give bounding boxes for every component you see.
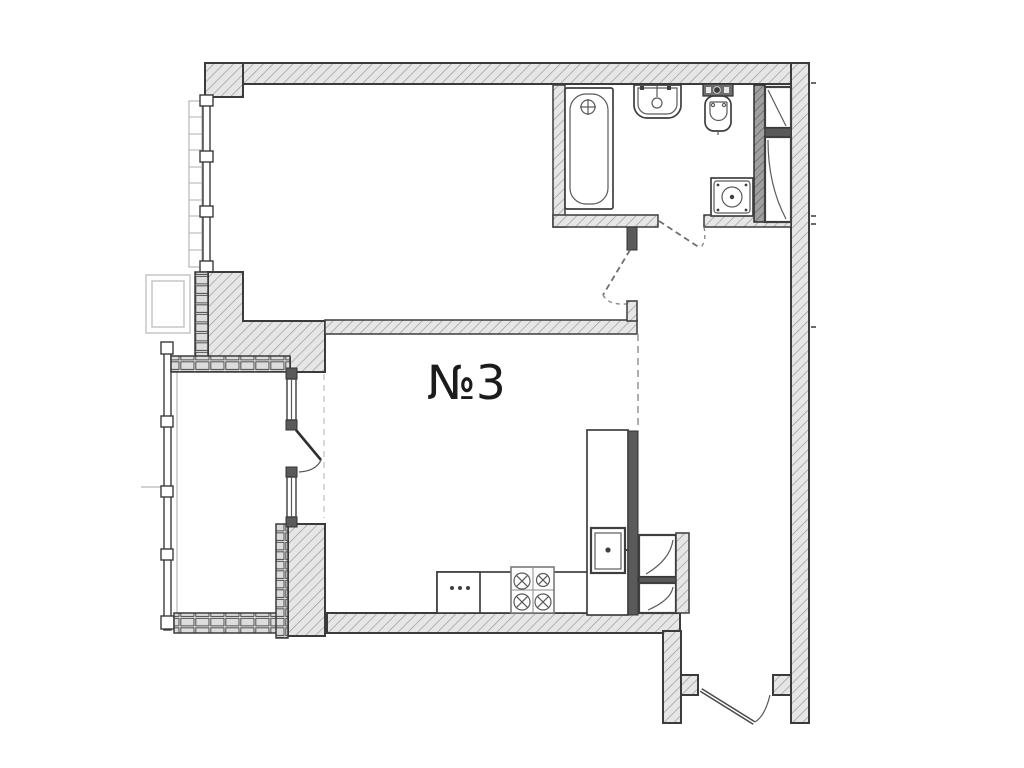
vestibule-right-jamb	[773, 675, 791, 695]
facade-ladder-icon	[189, 101, 202, 267]
window-post	[200, 206, 213, 217]
entry-door-icon	[701, 690, 770, 723]
sill-block	[286, 467, 297, 477]
vent-shaft-icon	[765, 137, 791, 222]
shaft-divider	[765, 128, 791, 137]
sill-block	[286, 368, 297, 379]
balcony-pier	[288, 524, 325, 636]
window-post	[200, 95, 213, 106]
top-left-pier	[205, 63, 243, 97]
vent-shaft-icon	[765, 87, 791, 128]
kitchen-side-wall	[628, 431, 638, 615]
vent-shaft-icon	[639, 583, 676, 613]
kitchen-sink-icon	[591, 528, 631, 573]
doors	[296, 221, 770, 723]
vestibule-left-wall	[663, 631, 681, 723]
glazing-post	[161, 549, 173, 560]
shaft-divider-wall	[754, 85, 765, 222]
kitchen-cabinet-icon	[437, 572, 480, 613]
glazing-post	[161, 416, 173, 427]
vestibule-left-jamb	[681, 675, 698, 695]
glazing-post	[161, 486, 173, 497]
balcony	[141, 342, 325, 638]
washing-machine-icon	[711, 178, 753, 216]
dimension-ticks	[811, 83, 816, 327]
window-glazing	[203, 97, 210, 272]
sill-block	[286, 420, 297, 430]
bathroom-fixtures	[565, 84, 753, 216]
floor-plan-canvas: №3	[0, 0, 1024, 768]
washbasin-icon	[634, 85, 681, 118]
floor-plan-drawing: №3	[0, 0, 1024, 768]
hall-vent-shaft	[639, 533, 689, 613]
balcony-door-window	[286, 368, 297, 527]
right-wall	[791, 63, 809, 723]
window-post	[200, 151, 213, 162]
stove-icon	[511, 567, 554, 613]
window-post	[200, 261, 213, 272]
sill-block	[286, 517, 297, 527]
kitchen-counter-tall	[587, 430, 628, 615]
bedroom-door-upper-jamb	[627, 225, 637, 250]
bedroom-door	[603, 250, 630, 304]
balcony-pier-brick-strip	[276, 524, 288, 638]
balcony-top-wall	[171, 356, 290, 372]
bathtub-icon	[565, 88, 613, 209]
bathroom-door	[659, 221, 705, 248]
bathroom-vent-shaft	[754, 85, 791, 222]
exterior-pad-icon	[146, 275, 190, 333]
kitchen	[437, 430, 638, 615]
unit-label: №3	[427, 356, 506, 411]
bedroom-bottom-wall	[325, 320, 637, 334]
glazing-post	[161, 342, 173, 354]
bathroom-bottom-wall-left	[553, 215, 658, 227]
balcony-door	[296, 430, 321, 472]
hall-shaft-pier	[676, 533, 689, 613]
bottom-wall	[327, 613, 680, 633]
toilet-icon	[703, 84, 733, 135]
bathroom-left-wall	[553, 85, 565, 227]
balcony-bottom-wall	[174, 613, 288, 633]
vent-shaft-icon	[639, 535, 676, 577]
top-wall	[242, 63, 809, 84]
glazing-post	[161, 616, 174, 629]
bedroom-door-lower-jamb	[627, 301, 637, 321]
